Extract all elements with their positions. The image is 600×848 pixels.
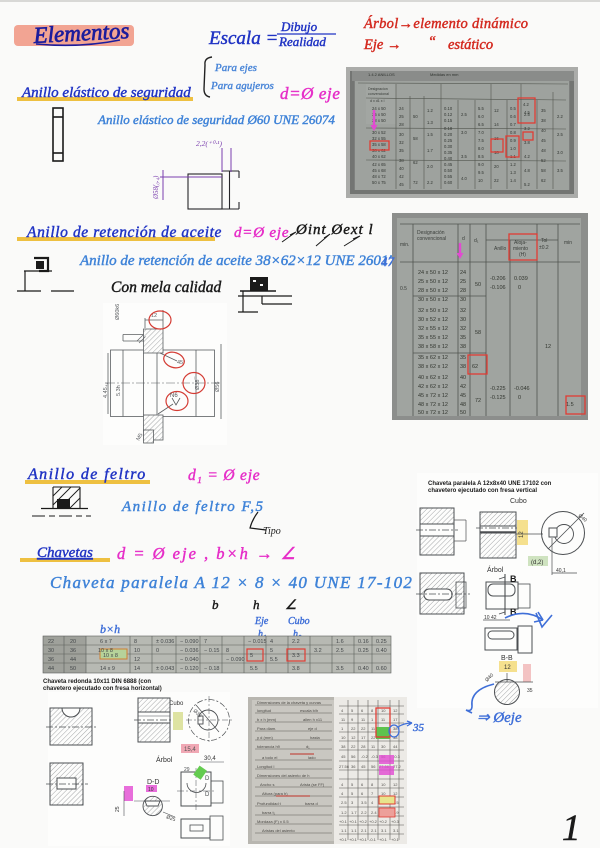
- svg-text:14: 14: [494, 122, 499, 127]
- svg-text:44: 44: [48, 666, 54, 672]
- svg-text:1.7: 1.7: [427, 148, 433, 153]
- svg-text:45: 45: [341, 754, 346, 759]
- svg-text:3.0: 3.0: [557, 150, 563, 155]
- svg-text:4.5: 4.5: [524, 110, 530, 115]
- svg-text:0: 0: [156, 648, 159, 654]
- svg-text:45 x 72 x 12: 45 x 72 x 12: [418, 393, 448, 399]
- svg-text:lado: lado: [308, 755, 316, 760]
- svg-text:0: 0: [518, 285, 521, 291]
- svg-text:min.: min.: [400, 242, 409, 248]
- svg-text:Øint Øext l: Øint Øext l: [295, 222, 374, 238]
- svg-text:barra d: barra d: [305, 801, 318, 806]
- svg-text:5.5: 5.5: [478, 106, 484, 111]
- svg-text:− 0.090: − 0.090: [226, 657, 245, 663]
- svg-text:Eje →: Eje →: [363, 37, 401, 53]
- svg-text:3.5: 3.5: [361, 800, 367, 805]
- svg-text:5.5: 5.5: [270, 657, 278, 663]
- svg-text:escala b/h: escala b/h: [300, 708, 318, 713]
- svg-text:17: 17: [361, 735, 366, 740]
- svg-text:10: 10: [148, 787, 154, 793]
- svg-text:longitud: longitud: [257, 708, 271, 713]
- svg-text:1.2: 1.2: [510, 162, 516, 167]
- svg-text:-0.046: -0.046: [514, 386, 530, 392]
- svg-text:0.30: 0.30: [444, 144, 453, 149]
- svg-text:5: 5: [250, 653, 253, 659]
- svg-text:28: 28: [399, 122, 404, 127]
- svg-text:1.1: 1.1: [351, 828, 357, 833]
- svg-text:+0.2: +0.2: [369, 819, 378, 824]
- svg-text:Longitud l: Longitud l: [257, 764, 274, 769]
- svg-text:6.0: 6.0: [478, 114, 484, 119]
- svg-text:1.3: 1.3: [510, 170, 516, 175]
- svg-text:3.1: 3.1: [381, 828, 387, 833]
- svg-text:42 x 65: 42 x 65: [372, 162, 386, 167]
- svg-text:estático: estático: [448, 37, 493, 53]
- svg-text:30: 30: [460, 317, 466, 323]
- svg-text:36: 36: [70, 648, 76, 654]
- svg-text:40: 40: [541, 128, 546, 133]
- svg-text:7.0: 7.0: [478, 130, 484, 135]
- svg-text:3.5: 3.5: [461, 154, 467, 159]
- svg-text:Anillo: Anillo: [494, 246, 506, 252]
- svg-text:10: 10: [134, 648, 140, 654]
- svg-text:-0.225: -0.225: [490, 386, 506, 392]
- svg-text:35: 35: [460, 335, 466, 341]
- svg-text:0.40: 0.40: [358, 666, 369, 672]
- svg-text:Arista (se FF): Arista (se FF): [300, 782, 325, 787]
- svg-text:12: 12: [393, 708, 398, 713]
- svg-text:0.16: 0.16: [358, 639, 369, 645]
- svg-text:24 x 50 x 12: 24 x 50 x 12: [418, 270, 448, 276]
- svg-text:25: 25: [460, 279, 466, 285]
- svg-text:0.60: 0.60: [376, 666, 387, 672]
- svg-text:50 x 72 x 12: 50 x 72 x 12: [418, 410, 448, 416]
- svg-text:5.5: 5.5: [250, 666, 258, 672]
- svg-text:y d (mm): y d (mm): [257, 735, 273, 740]
- svg-text:1.5: 1.5: [566, 402, 574, 408]
- svg-text:tolerancia h9: tolerancia h9: [257, 744, 281, 749]
- svg-text:22: 22: [361, 726, 366, 731]
- svg-text:10: 10: [381, 708, 386, 713]
- svg-text:45: 45: [460, 393, 466, 399]
- svg-text:0.45: 0.45: [444, 162, 453, 167]
- svg-text:convencional: convencional: [368, 92, 389, 96]
- svg-text:15,4: 15,4: [184, 747, 196, 753]
- svg-text:35 x 55 x 12: 35 x 55 x 12: [418, 335, 448, 341]
- svg-text:Ø56: Ø56: [215, 382, 221, 392]
- svg-text:50: 50: [413, 114, 418, 119]
- svg-text:52: 52: [541, 158, 546, 163]
- svg-text:a todo el: a todo el: [262, 755, 277, 760]
- svg-text:0.9: 0.9: [510, 138, 516, 143]
- svg-text:1.5: 1.5: [427, 132, 433, 137]
- svg-text:+0.2: +0.2: [359, 819, 368, 824]
- svg-text:Designacion: Designacion: [368, 87, 388, 91]
- svg-text:− 0.040: − 0.040: [180, 657, 199, 663]
- svg-text:56: 56: [351, 754, 356, 759]
- svg-text:h: h: [253, 597, 260, 612]
- svg-text:50 x 75: 50 x 75: [372, 180, 386, 185]
- svg-text:“: “: [428, 34, 436, 50]
- svg-text:Chavetas: Chavetas: [37, 545, 93, 561]
- svg-text:12: 12: [134, 657, 140, 663]
- svg-text:38: 38: [460, 364, 466, 370]
- svg-text:d x d1 x l: d x d1 x l: [370, 99, 385, 103]
- svg-text:30 x 52: 30 x 52: [372, 130, 386, 135]
- svg-text:0: 0: [518, 395, 521, 401]
- svg-text:Chaveta paralela A 12x8x40 UNE: Chaveta paralela A 12x8x40 UNE 17102 con: [428, 481, 552, 487]
- svg-text:38: 38: [541, 118, 546, 123]
- svg-text:0.15: 0.15: [444, 118, 453, 123]
- svg-text:Anillo elástico de seguridad: Anillo elástico de seguridad: [21, 85, 191, 101]
- svg-text:+0.1: +0.1: [349, 837, 358, 842]
- svg-text:Para agujeros: Para agujeros: [210, 80, 274, 92]
- svg-text:+0.1: +0.1: [359, 837, 368, 842]
- svg-text:35: 35: [412, 722, 425, 734]
- svg-text:47: 47: [381, 254, 395, 269]
- svg-text:2.5: 2.5: [341, 800, 347, 805]
- svg-text:5.2: 5.2: [524, 182, 530, 187]
- svg-text:25: 25: [115, 806, 121, 812]
- svg-text:Elementos: Elementos: [32, 18, 130, 48]
- svg-text:Para ejes: Para ejes: [214, 62, 257, 74]
- svg-text:0.55: 0.55: [444, 174, 453, 179]
- svg-text:40 x 62: 40 x 62: [372, 154, 386, 159]
- svg-text:0.60: 0.60: [444, 180, 453, 185]
- svg-text:0.10: 0.10: [444, 106, 453, 111]
- svg-text:9.0: 9.0: [478, 162, 484, 167]
- svg-text:45: 45: [361, 764, 366, 769]
- svg-text:12: 12: [393, 782, 398, 787]
- svg-text:0.50: 0.50: [444, 168, 453, 173]
- svg-text:Anillo elástico de seguridad: Anillo elástico de seguridad Ø60 UNE 260…: [97, 112, 335, 127]
- svg-text:45 x 68: 45 x 68: [372, 168, 386, 173]
- svg-text:3.8: 3.8: [524, 140, 530, 145]
- svg-text:Anillo de feltro F,5: Anillo de feltro F,5: [121, 499, 265, 515]
- svg-text:58: 58: [541, 168, 546, 173]
- svg-text:⇒ Øeje: ⇒ Øeje: [477, 710, 522, 726]
- svg-text:3.2: 3.2: [314, 648, 322, 654]
- svg-text:0.12: 0.12: [444, 112, 453, 117]
- svg-text:32: 32: [460, 326, 466, 332]
- svg-text:3.3: 3.3: [292, 653, 300, 659]
- svg-text:2.5: 2.5: [461, 112, 467, 117]
- svg-text:0.25: 0.25: [376, 639, 387, 645]
- svg-text:0.40: 0.40: [444, 156, 453, 161]
- svg-text:D: D: [205, 776, 210, 782]
- svg-text:3.8: 3.8: [292, 666, 300, 672]
- svg-text:0.5: 0.5: [400, 286, 407, 292]
- svg-text:Mordaza (F) x 0.5: Mordaza (F) x 0.5: [257, 819, 289, 824]
- svg-text:28: 28: [361, 744, 366, 749]
- svg-text:40: 40: [399, 166, 404, 171]
- svg-text:− 0.18: − 0.18: [204, 666, 219, 672]
- svg-text:5.3h: 5.3h: [116, 385, 122, 396]
- svg-text:2.2: 2.2: [427, 180, 433, 185]
- svg-text:Anillo de retención de aceite: Anillo de retención de aceite: [26, 224, 222, 241]
- svg-text:b x h (mm): b x h (mm): [257, 717, 277, 722]
- svg-text:1.3: 1.3: [427, 120, 433, 125]
- svg-text:30: 30: [48, 648, 54, 654]
- svg-text:d₁ = Ø eje: d₁ = Ø eje: [188, 467, 260, 484]
- svg-text:10 42: 10 42: [484, 615, 497, 621]
- svg-text:Anillo de retención de aceite: Anillo de retención de aceite 38×62×12 U…: [79, 253, 397, 269]
- svg-text:Eje: Eje: [254, 616, 269, 627]
- svg-text:0.25: 0.25: [358, 648, 369, 654]
- svg-text:32 x 55 x 12: 32 x 55 x 12: [418, 326, 448, 332]
- svg-text:1.4: 1.4: [510, 178, 516, 183]
- svg-text:7.5: 7.5: [478, 138, 484, 143]
- svg-text:30: 30: [399, 132, 404, 137]
- svg-text:b: b: [212, 597, 219, 612]
- svg-text:30: 30: [460, 297, 466, 303]
- svg-text:62: 62: [413, 160, 418, 165]
- svg-text:b×h: b×h: [100, 622, 120, 636]
- svg-text:36: 36: [48, 657, 54, 663]
- svg-text:Aristas del asiento: Aristas del asiento: [262, 828, 295, 833]
- svg-text:10: 10: [341, 735, 346, 740]
- svg-text:Profundidad t: Profundidad t: [257, 801, 282, 806]
- svg-text:8.0: 8.0: [478, 146, 484, 151]
- svg-text:8: 8: [134, 639, 137, 645]
- svg-text:-0.3: -0.3: [393, 754, 401, 759]
- svg-text:1.4.2 ANILLOS: 1.4.2 ANILLOS: [368, 72, 395, 77]
- svg-text:− 0.015: − 0.015: [248, 639, 267, 645]
- svg-text:48 x 72 x 12: 48 x 72 x 12: [418, 402, 448, 408]
- svg-text:20: 20: [494, 164, 499, 169]
- svg-text:2.2: 2.2: [292, 639, 300, 645]
- svg-text:d=Ø eje: d=Ø eje: [280, 84, 341, 103]
- svg-text:− 0.120: − 0.120: [180, 666, 199, 672]
- svg-text:Para diam.: Para diam.: [257, 726, 276, 731]
- svg-text:27.56: 27.56: [339, 764, 350, 769]
- svg-text:38: 38: [460, 344, 466, 350]
- svg-text:0.20: 0.20: [444, 132, 453, 137]
- svg-text:Árbol: Árbol: [156, 755, 173, 764]
- svg-text:72: 72: [475, 398, 481, 404]
- svg-text:28 x 50 x 12: 28 x 50 x 12: [418, 288, 448, 294]
- svg-text:+0.3: +0.3: [391, 819, 400, 824]
- svg-text:35 x 62 x 12: 35 x 62 x 12: [418, 355, 448, 361]
- svg-text:12: 12: [504, 665, 511, 671]
- svg-text:Cubo: Cubo: [510, 498, 527, 505]
- svg-text:40,1: 40,1: [556, 568, 566, 574]
- svg-text:48: 48: [541, 148, 546, 153]
- svg-text:0.5: 0.5: [510, 106, 516, 111]
- svg-text:Cubo: Cubo: [169, 701, 184, 707]
- svg-text:0.35: 0.35: [444, 150, 453, 155]
- svg-text:-0.3: -0.3: [371, 754, 379, 759]
- svg-text:40: 40: [460, 375, 466, 381]
- svg-text:4.8: 4.8: [524, 168, 530, 173]
- svg-text:22: 22: [351, 744, 356, 749]
- svg-text:36: 36: [351, 764, 356, 769]
- svg-text:Medidas en mm: Medidas en mm: [430, 72, 459, 77]
- svg-text:38: 38: [399, 158, 404, 163]
- svg-text:22: 22: [494, 178, 499, 183]
- svg-text:38: 38: [341, 744, 346, 749]
- svg-text:50: 50: [460, 410, 466, 416]
- svg-text:30: 30: [381, 744, 386, 749]
- svg-text:Anillo de feltro: Anillo de feltro: [27, 466, 147, 483]
- svg-text:Ø38¯: Ø38¯: [194, 376, 201, 390]
- svg-text:48 x 72: 48 x 72: [372, 174, 386, 179]
- svg-text:0.25: 0.25: [444, 138, 453, 143]
- svg-text:5: 5: [270, 648, 273, 654]
- svg-text:12: 12: [545, 344, 551, 350]
- svg-text:32: 32: [460, 308, 466, 314]
- svg-text:0.7: 0.7: [510, 122, 516, 127]
- svg-text:30 x 52 x 12: 30 x 52 x 12: [418, 317, 448, 323]
- svg-text:1.7: 1.7: [351, 810, 357, 815]
- svg-text:35: 35: [527, 688, 533, 694]
- svg-text:3.5: 3.5: [557, 168, 563, 173]
- svg-text:42: 42: [399, 174, 404, 179]
- svg-text:1: 1: [562, 808, 581, 848]
- svg-text:0.40: 0.40: [376, 648, 387, 654]
- svg-text:0.039: 0.039: [514, 276, 528, 282]
- svg-text:− 0.036: − 0.036: [180, 648, 199, 654]
- svg-text:40 x 62 x 12: 40 x 62 x 12: [418, 375, 448, 381]
- svg-text:− 0.090: − 0.090: [180, 639, 199, 645]
- svg-text:1.0: 1.0: [510, 146, 516, 151]
- svg-text:Ancho s: Ancho s: [260, 782, 274, 787]
- svg-text:min: min: [564, 240, 572, 246]
- svg-text:28: 28: [460, 288, 466, 294]
- svg-text:3.5: 3.5: [336, 666, 344, 672]
- svg-text:Ø58(₀.₄): Ø58(₀.₄): [152, 175, 160, 200]
- svg-text:58: 58: [413, 136, 418, 141]
- svg-text:58: 58: [475, 330, 481, 336]
- svg-text:-0.106: -0.106: [490, 285, 506, 291]
- svg-text:0.6: 0.6: [510, 114, 516, 119]
- svg-text:1.1: 1.1: [341, 828, 347, 833]
- svg-text:20: 20: [70, 639, 76, 645]
- svg-text:D: D: [205, 792, 210, 798]
- svg-text:10: 10: [381, 782, 386, 787]
- svg-text:2.1: 2.1: [361, 828, 367, 833]
- svg-text:10: 10: [478, 178, 483, 183]
- svg-text:32 x 50 x 12: 32 x 50 x 12: [418, 308, 448, 314]
- svg-text:eje d: eje d: [308, 726, 317, 731]
- svg-text:50: 50: [70, 666, 76, 672]
- svg-text:42: 42: [460, 384, 466, 390]
- svg-text:d=Ø eje: d=Ø eje: [234, 225, 289, 241]
- svg-text:+0.1: +0.1: [349, 819, 358, 824]
- svg-text:0.18: 0.18: [444, 126, 453, 131]
- svg-text:2.2: 2.2: [361, 810, 367, 815]
- svg-text:24: 24: [399, 106, 404, 111]
- svg-text:4.2: 4.2: [524, 154, 530, 159]
- svg-text:+0.1: +0.1: [339, 819, 348, 824]
- svg-text:convencional: convencional: [417, 236, 446, 242]
- svg-text:Árbol: Árbol: [487, 565, 504, 574]
- svg-text:35: 35: [541, 108, 546, 113]
- svg-text:56: 56: [371, 764, 376, 769]
- svg-text:Con mela calidad: Con mela calidad: [111, 279, 221, 296]
- svg-text:4.0: 4.0: [461, 176, 467, 181]
- svg-text:Chaveta paralela A 12 × 8 ×: Chaveta paralela A 12 × 8 × 40 UNE 17-10…: [50, 573, 413, 592]
- svg-text:chavetero ejecutado con fresa: chavetero ejecutado con fresa horizontal…: [43, 686, 162, 692]
- svg-text:d = Ø eje , b×h → ∠: d = Ø eje , b×h → ∠: [117, 544, 297, 563]
- svg-text:2,2(⁺⁰⋅¹): 2,2(⁺⁰⋅¹): [196, 139, 222, 148]
- svg-text:35: 35: [460, 355, 466, 361]
- svg-text:8.5: 8.5: [478, 154, 484, 159]
- svg-text:B-B: B-B: [501, 655, 513, 662]
- svg-text:+0.1: +0.1: [391, 837, 400, 842]
- svg-text:Chaveta redonda 10x11 DIN 688: Chaveta redonda 10x11 DIN 6888 (con: [43, 679, 151, 685]
- svg-text:12: 12: [393, 791, 398, 796]
- svg-text:12: 12: [494, 108, 499, 113]
- svg-text:10: 10: [381, 791, 386, 796]
- svg-text:30 x 50 x 12: 30 x 50 x 12: [418, 297, 448, 303]
- svg-text:22: 22: [48, 639, 54, 645]
- svg-text:45: 45: [399, 182, 404, 187]
- svg-text:N6: N6: [170, 393, 178, 399]
- svg-text:3.2: 3.2: [524, 126, 530, 131]
- svg-text:14 x 9: 14 x 9: [100, 666, 115, 672]
- svg-text:6.5: 6.5: [478, 122, 484, 127]
- svg-text:(H): (H): [519, 252, 526, 258]
- svg-text:Dimensiones del asiento de h: Dimensiones del asiento de h: [257, 773, 309, 778]
- svg-text:hasta: hasta: [310, 735, 321, 740]
- svg-text:allen h x11: allen h x11: [303, 717, 323, 722]
- svg-text:1.2: 1.2: [341, 810, 347, 815]
- svg-text:1.2: 1.2: [427, 108, 433, 113]
- svg-text:6 x 7: 6 x 7: [100, 639, 112, 645]
- svg-text:+0.1: +0.1: [339, 837, 348, 842]
- svg-text:(d,2): (d,2): [531, 560, 543, 566]
- svg-text:d₁: d₁: [474, 238, 479, 244]
- svg-text:38 x 62 x 12: 38 x 62 x 12: [418, 364, 448, 370]
- svg-text:22: 22: [351, 726, 356, 731]
- svg-text:8: 8: [226, 648, 229, 654]
- svg-text:-0.1: -0.1: [369, 837, 377, 842]
- svg-text:38 x 58 x 12: 38 x 58 x 12: [418, 344, 448, 350]
- svg-text:62: 62: [472, 364, 478, 370]
- svg-text:50: 50: [475, 282, 481, 288]
- svg-text:1.6: 1.6: [336, 639, 344, 645]
- svg-text:17: 17: [393, 717, 398, 722]
- svg-text:30,4: 30,4: [204, 756, 216, 762]
- svg-text:10 x 8: 10 x 8: [103, 653, 118, 659]
- svg-text:4: 4: [270, 639, 273, 645]
- svg-text:2.5: 2.5: [336, 648, 344, 654]
- svg-text:4.45₊₂: 4.45₊₂: [103, 382, 109, 398]
- svg-text:27.2: 27.2: [393, 764, 402, 769]
- svg-text:+0.2: +0.2: [379, 819, 388, 824]
- svg-text:24: 24: [460, 270, 466, 276]
- svg-text:Ø60k6: Ø60k6: [115, 304, 121, 320]
- svg-text:35 x 58: 35 x 58: [372, 142, 386, 147]
- svg-text:Escala =: Escala =: [208, 28, 278, 49]
- svg-text:42 x 62 x 12: 42 x 62 x 12: [418, 384, 448, 390]
- svg-text:D-D: D-D: [147, 779, 159, 786]
- svg-text:35: 35: [399, 148, 404, 153]
- svg-text:Altura (para h): Altura (para h): [262, 791, 288, 796]
- svg-text:± 0.036: ± 0.036: [156, 639, 174, 645]
- svg-text:62: 62: [541, 178, 546, 183]
- svg-text:− 0.15: − 0.15: [204, 648, 219, 654]
- svg-text:d: d: [462, 236, 465, 242]
- svg-text:3.1: 3.1: [393, 828, 399, 833]
- svg-text:44: 44: [393, 744, 398, 749]
- svg-text:7: 7: [204, 639, 207, 645]
- svg-text:44: 44: [70, 657, 76, 663]
- svg-text:Realidad: Realidad: [278, 34, 326, 49]
- svg-text:9.5: 9.5: [478, 170, 484, 175]
- svg-text:32 x 55: 32 x 55: [372, 136, 386, 141]
